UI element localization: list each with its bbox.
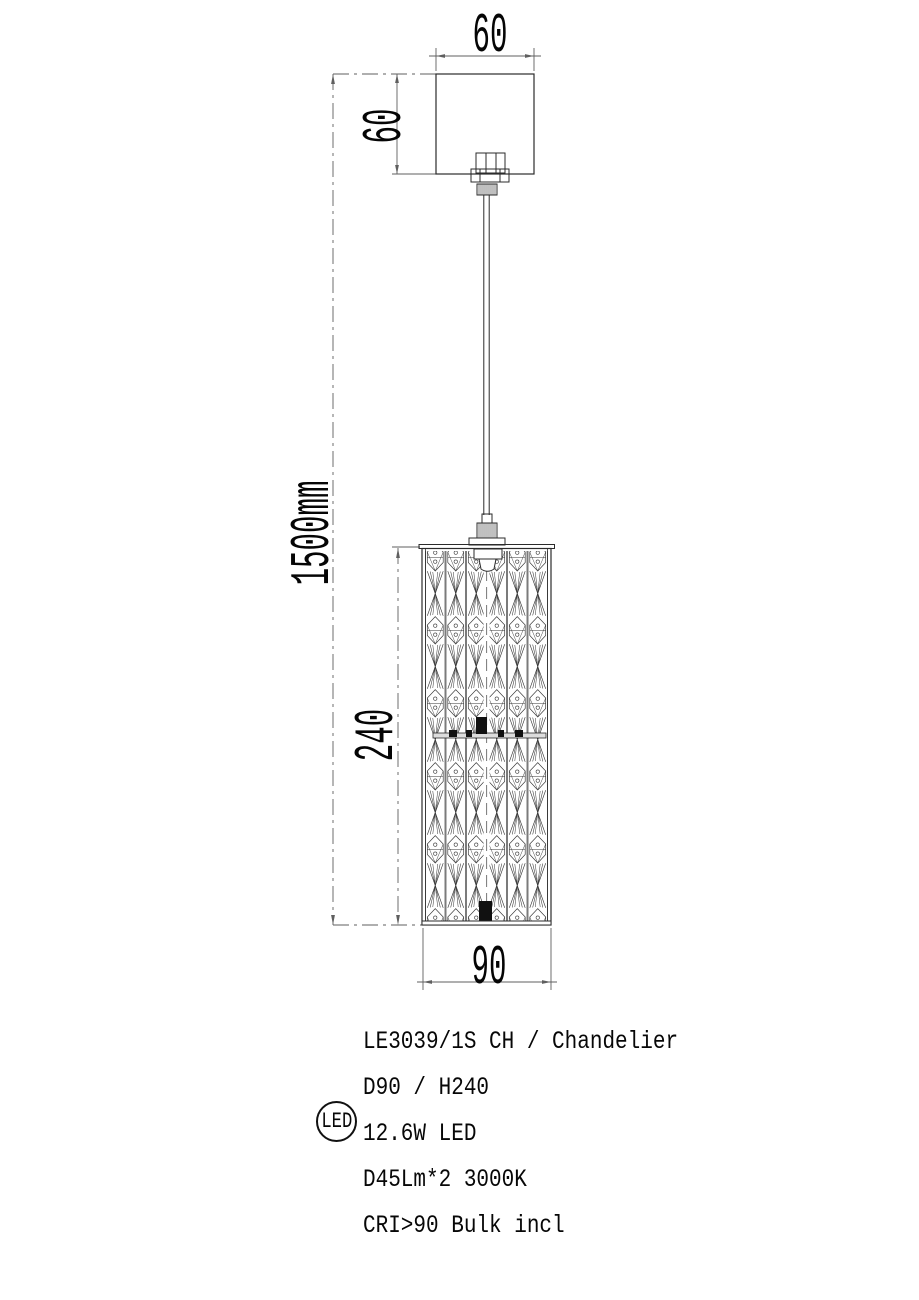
led-badge: LED xyxy=(316,1101,357,1142)
spec-lumen-line: D45Lm*2 3000K xyxy=(363,1157,716,1203)
technical-drawing-page: 60 60 1500mm 240 90 LED LE3039/1S CH / C… xyxy=(0,0,919,1300)
dimension-shade-diameter: 90 xyxy=(472,940,507,996)
spec-cri-line: CRI>90 Bulk incl xyxy=(363,1203,716,1249)
spec-power-line: 12.6W LED xyxy=(363,1111,716,1157)
led-badge-label: LED xyxy=(321,1109,352,1134)
product-spec-block: LE3039/1S CH / Chandelier D90 / H240 12.… xyxy=(363,1019,783,1249)
dimension-canopy-height: 60 xyxy=(357,109,413,144)
shade-drawing xyxy=(419,545,555,926)
dimension-suspension-length: 1500mm xyxy=(285,481,341,586)
spec-size-line: D90 / H240 xyxy=(363,1065,716,1111)
canopy-drawing xyxy=(436,74,534,174)
dimension-shade-height: 240 xyxy=(349,709,405,761)
spec-model-line: LE3039/1S CH / Chandelier xyxy=(363,1019,716,1065)
dimension-canopy-width: 60 xyxy=(473,8,508,64)
suspension-wire-drawing xyxy=(469,153,509,545)
